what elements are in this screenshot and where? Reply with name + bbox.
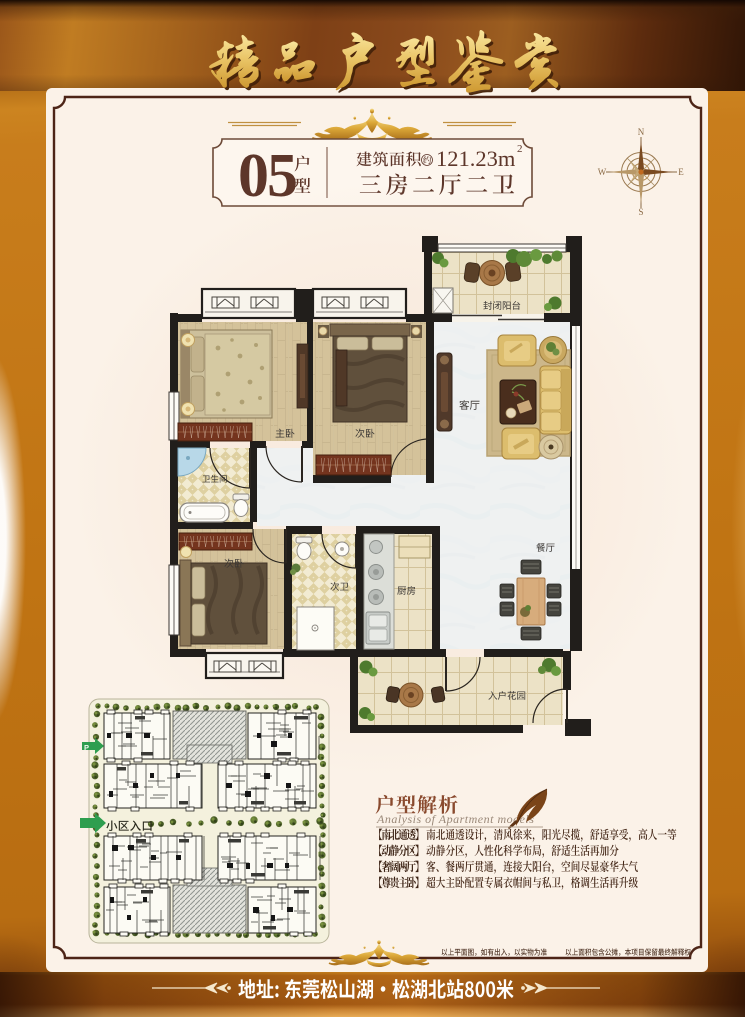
svg-text:P: P [84, 743, 89, 752]
svg-text:S: S [638, 207, 643, 217]
svg-text:121.23m: 121.23m [436, 146, 516, 171]
svg-text:Analysis of Apartment models: Analysis of Apartment models [376, 812, 534, 826]
svg-text:W: W [598, 167, 607, 177]
svg-text:E: E [678, 167, 684, 177]
svg-text:N: N [638, 127, 645, 137]
svg-text:2: 2 [517, 143, 523, 155]
